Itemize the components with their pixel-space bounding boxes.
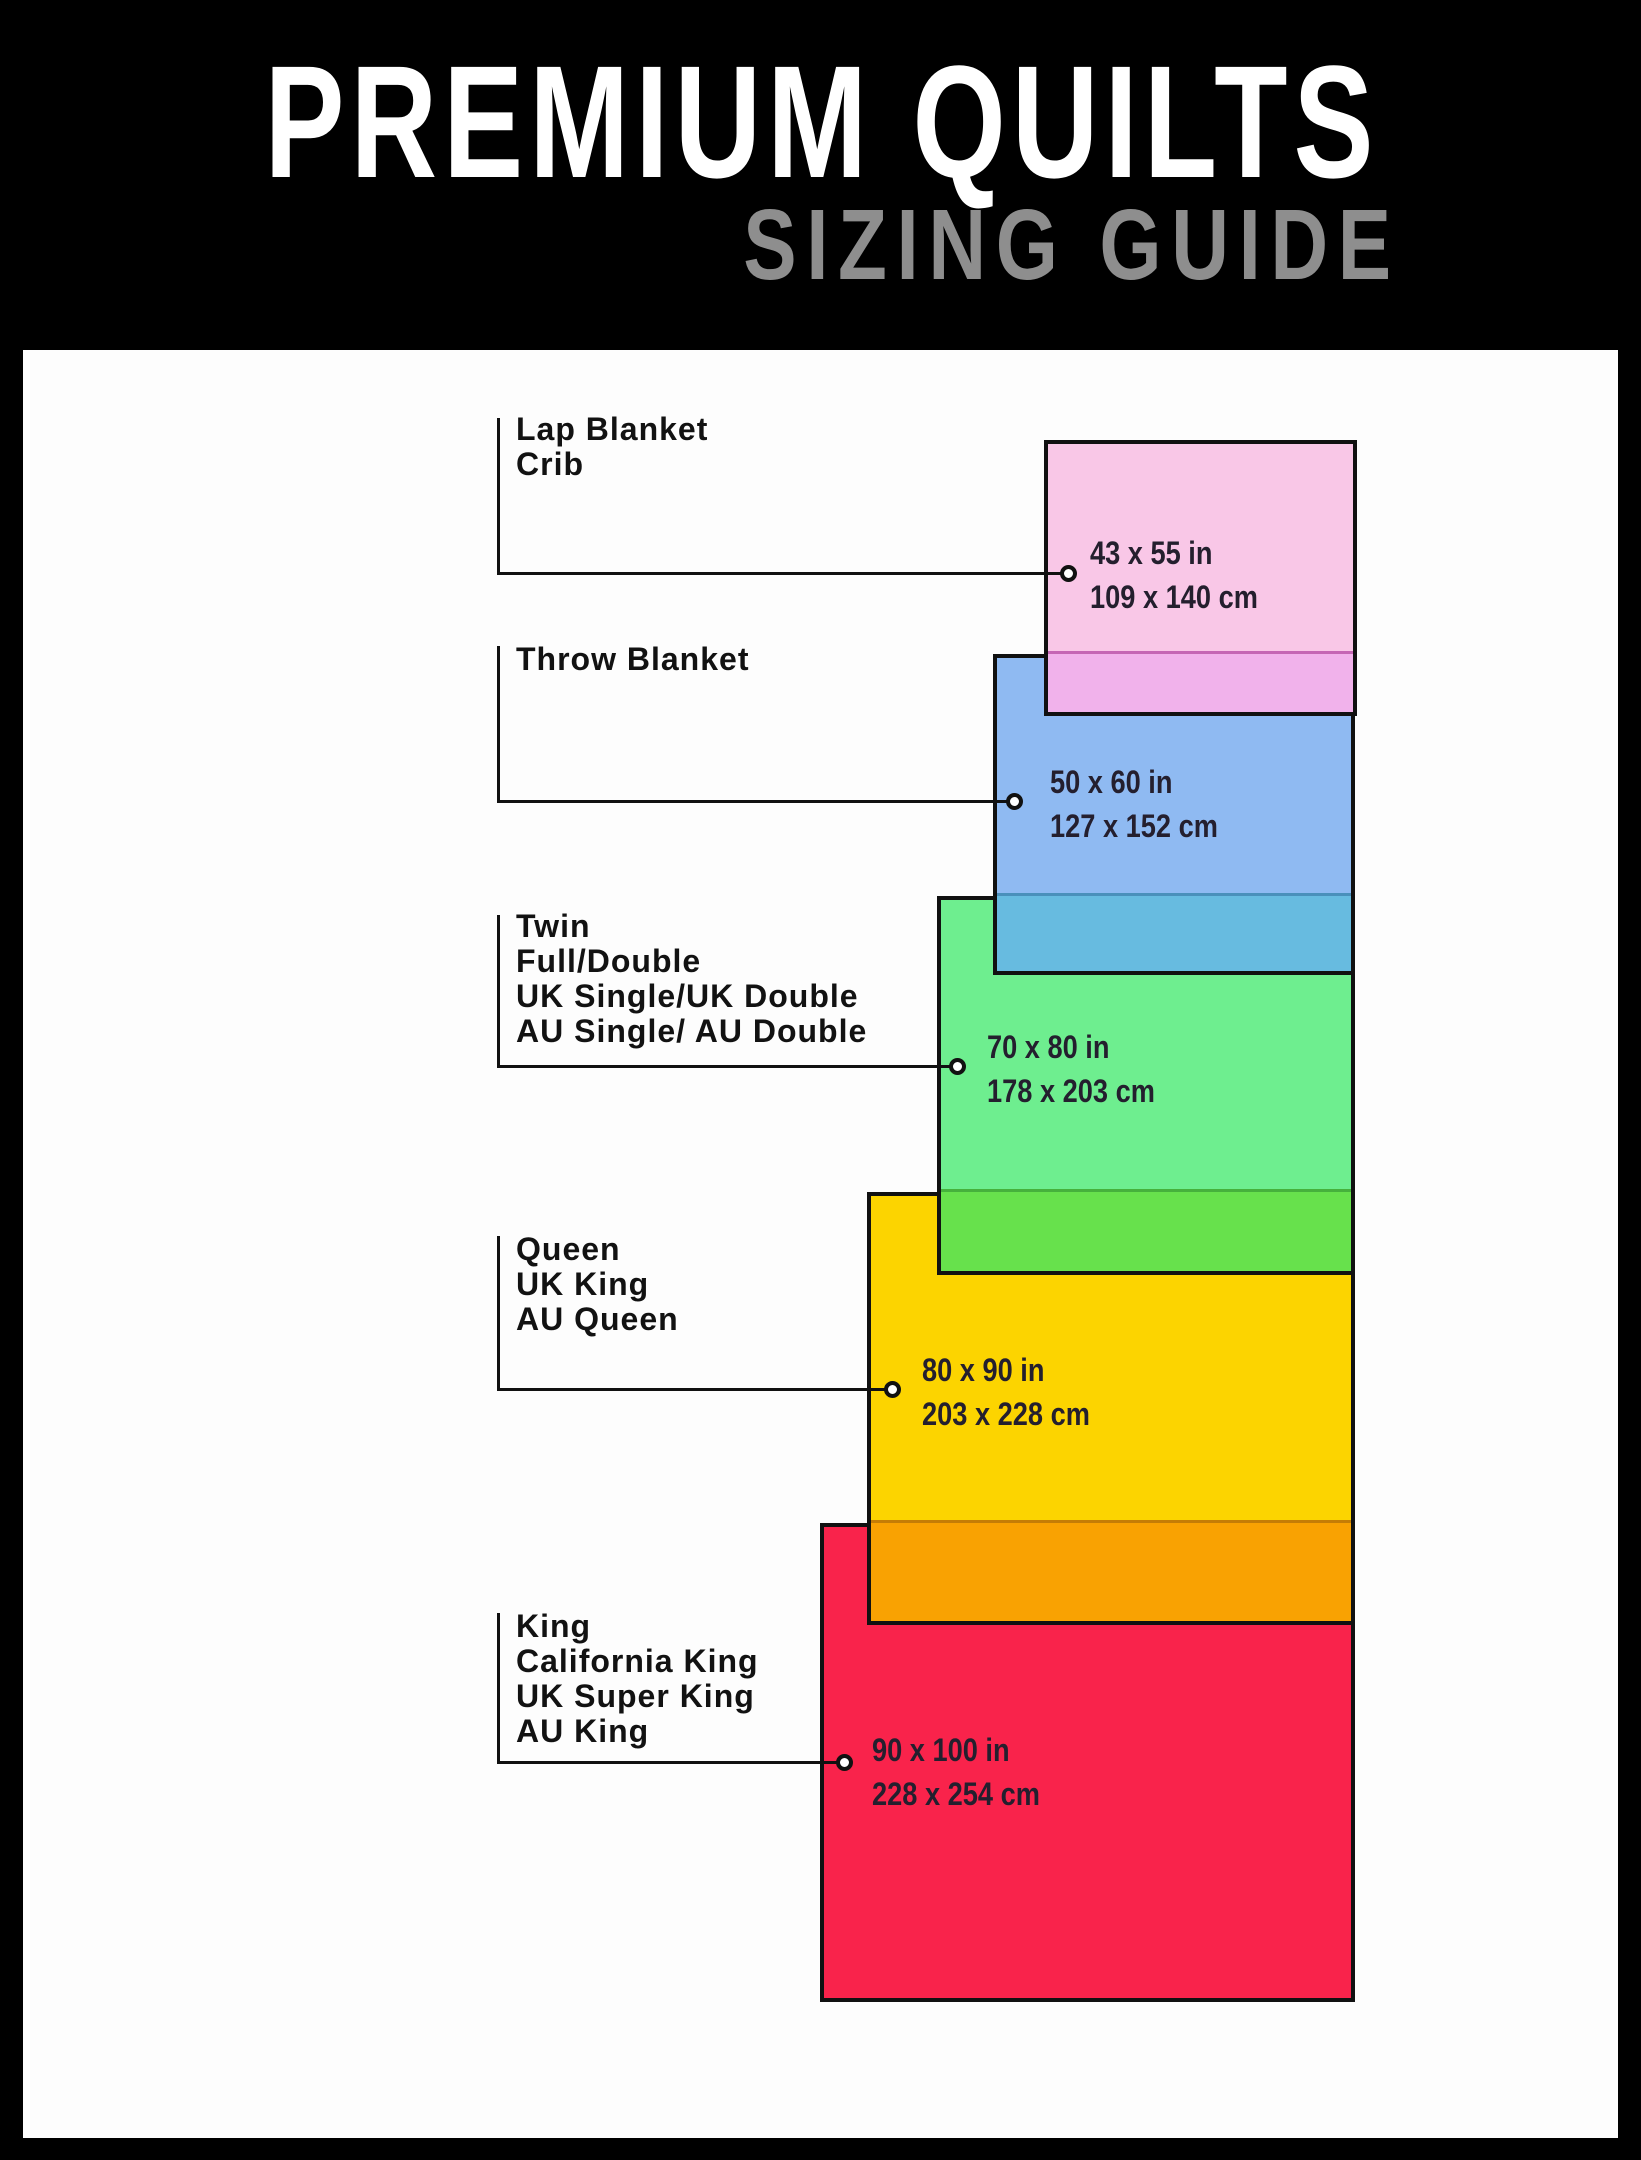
dimension-inches: 50 x 60 in bbox=[1050, 760, 1218, 804]
label-line: UK Single/UK Double bbox=[516, 979, 867, 1014]
dimension-cm: 127 x 152 cm bbox=[1050, 804, 1218, 848]
dimension-cm: 109 x 140 cm bbox=[1090, 575, 1258, 619]
label-line: Full/Double bbox=[516, 944, 867, 979]
connector-dot-throw-icon bbox=[1006, 793, 1023, 810]
dimensions-lap-blanket-crib: 43 x 55 in 109 x 140 cm bbox=[1090, 531, 1258, 619]
page-title: PREMIUM QUILTS bbox=[264, 42, 1379, 202]
dimension-inches: 80 x 90 in bbox=[922, 1348, 1090, 1392]
label-block-king: King California King UK Super King AU Ki… bbox=[516, 1609, 759, 1749]
label-block-twin: Twin Full/Double UK Single/UK Double AU … bbox=[516, 909, 867, 1049]
label-line: UK Super King bbox=[516, 1679, 759, 1714]
label-line: Lap Blanket bbox=[516, 412, 708, 447]
dimension-cm: 203 x 228 cm bbox=[922, 1392, 1090, 1436]
overlap-band-throw-twin bbox=[997, 893, 1351, 971]
connector-horizontal-king bbox=[497, 1761, 845, 1764]
connector-vertical-twin bbox=[497, 915, 500, 1068]
dimension-inches: 90 x 100 in bbox=[872, 1728, 1040, 1772]
connector-dot-queen-icon bbox=[884, 1381, 901, 1398]
label-line: King bbox=[516, 1609, 759, 1644]
connector-horizontal-throw bbox=[497, 800, 1015, 803]
dimensions-twin: 70 x 80 in 178 x 203 cm bbox=[987, 1025, 1155, 1113]
connector-vertical-queen bbox=[497, 1236, 500, 1391]
label-line: UK King bbox=[516, 1267, 679, 1302]
connector-dot-twin-icon bbox=[949, 1058, 966, 1075]
label-line: Throw Blanket bbox=[516, 642, 749, 677]
dimension-inches: 70 x 80 in bbox=[987, 1025, 1155, 1069]
connector-horizontal-twin bbox=[497, 1065, 958, 1068]
label-line: Twin bbox=[516, 909, 867, 944]
dimensions-king: 90 x 100 in 228 x 254 cm bbox=[872, 1728, 1040, 1816]
overlap-band-twin-queen bbox=[941, 1189, 1351, 1271]
label-line: California King bbox=[516, 1644, 759, 1679]
dimension-cm: 228 x 254 cm bbox=[872, 1772, 1040, 1816]
label-line: AU Queen bbox=[516, 1302, 679, 1337]
label-line: Queen bbox=[516, 1232, 679, 1267]
label-block-queen: Queen UK King AU Queen bbox=[516, 1232, 679, 1337]
label-line: AU King bbox=[516, 1714, 759, 1749]
overlap-band-lap-throw bbox=[1048, 651, 1353, 712]
connector-vertical-throw bbox=[497, 646, 500, 803]
page: PREMIUM QUILTS SIZING GUIDE Lap Blanket … bbox=[0, 0, 1641, 2160]
connector-dot-king-icon bbox=[836, 1754, 853, 1771]
label-line: AU Single/ AU Double bbox=[516, 1014, 867, 1049]
connector-horizontal-queen bbox=[497, 1388, 893, 1391]
dimension-inches: 43 x 55 in bbox=[1090, 531, 1258, 575]
connector-horizontal-lap bbox=[497, 572, 1069, 575]
label-line: Crib bbox=[516, 447, 708, 482]
dimensions-queen: 80 x 90 in 203 x 228 cm bbox=[922, 1348, 1090, 1436]
label-block-throw-blanket: Throw Blanket bbox=[516, 642, 749, 677]
page-subtitle: SIZING GUIDE bbox=[743, 195, 1400, 295]
connector-vertical-king bbox=[497, 1613, 500, 1764]
connector-dot-lap-icon bbox=[1060, 565, 1077, 582]
dimensions-throw-blanket: 50 x 60 in 127 x 152 cm bbox=[1050, 760, 1218, 848]
dimension-cm: 178 x 203 cm bbox=[987, 1069, 1155, 1113]
label-block-lap-blanket-crib: Lap Blanket Crib bbox=[516, 412, 708, 482]
connector-vertical-lap bbox=[497, 418, 500, 575]
overlap-band-queen-king bbox=[871, 1520, 1351, 1621]
